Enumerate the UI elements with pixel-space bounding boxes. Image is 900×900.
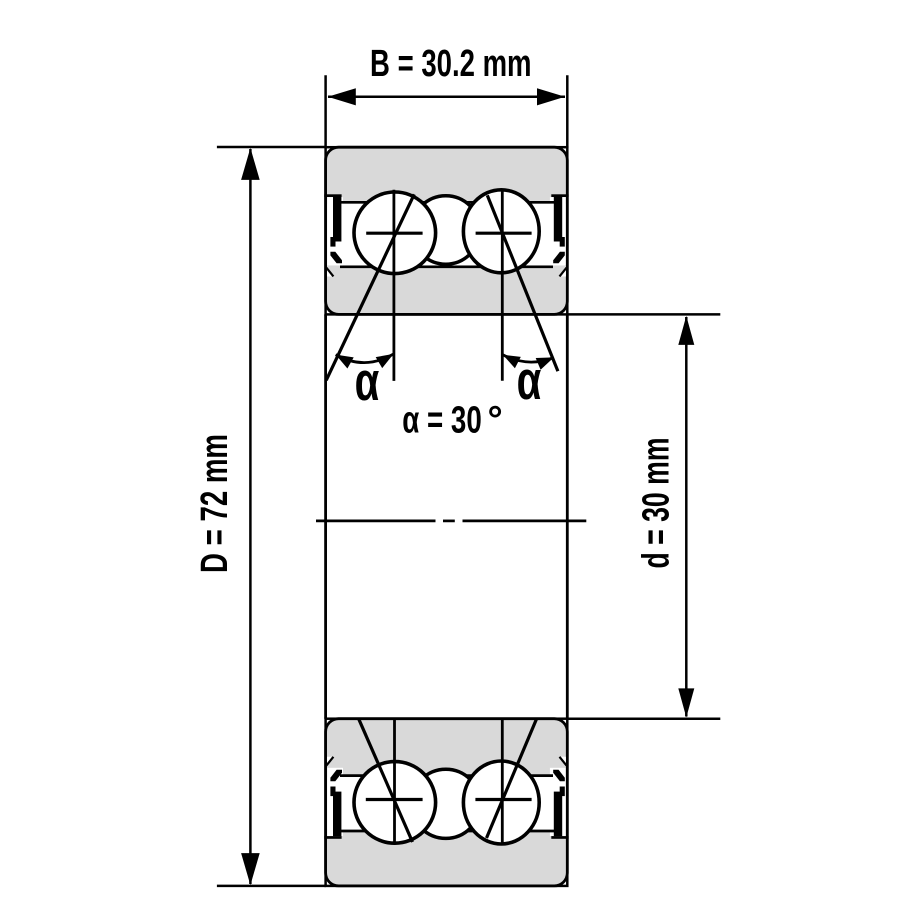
svg-text:d = 30 mm: d = 30 mm (636, 438, 678, 569)
svg-text:D = 72 mm: D = 72 mm (194, 434, 236, 573)
svg-text:B = 30.2 mm: B = 30.2 mm (370, 43, 532, 85)
svg-text:α: α (355, 351, 380, 413)
svg-text:°: ° (488, 399, 503, 441)
svg-text:α = 30: α = 30 (402, 399, 482, 441)
svg-text:α: α (517, 350, 542, 412)
